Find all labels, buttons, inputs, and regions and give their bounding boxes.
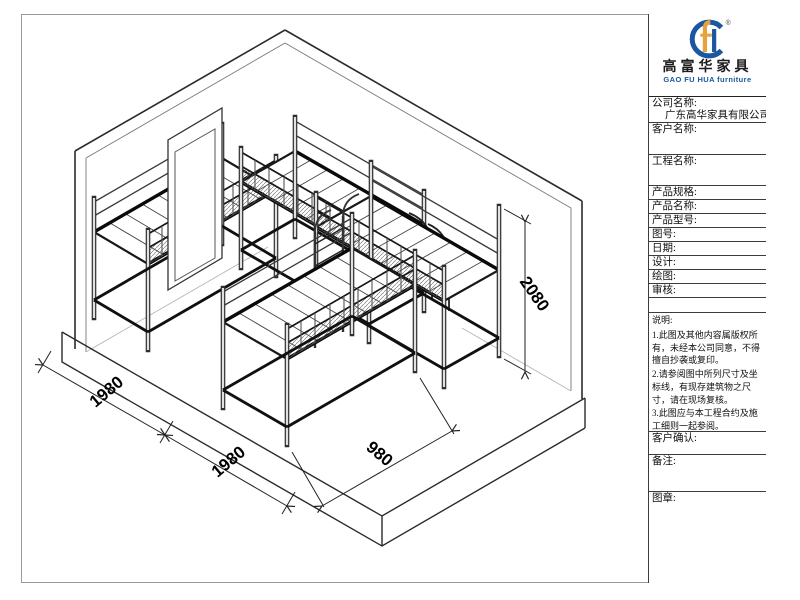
field-label: 图章: (652, 493, 676, 504)
dim-label-height: 2080 (516, 273, 553, 315)
room-floor-slab (62, 332, 585, 546)
brand-name-en: GAO FU HUA furniture (663, 76, 751, 85)
extension-lines-bays (38, 351, 295, 514)
svg-text:®: ® (725, 19, 730, 27)
field-label: 客户名称: (652, 124, 697, 135)
spacer-row (649, 298, 766, 313)
dim-label-depth: 980 (363, 437, 397, 470)
logo-box: ® 高富华家具 GAO FU HUA furniture (649, 14, 766, 97)
field-label: 公司名称: (652, 98, 697, 109)
field-review: 审核: (649, 284, 766, 298)
field-remark: 备注: (649, 455, 766, 492)
field-product-name: 产品名称: (649, 200, 766, 214)
field-label: 产品名称: (652, 201, 697, 212)
field-design: 设计: (649, 256, 766, 270)
field-label: 客户确认: (652, 433, 697, 444)
dim-label-bay2: 1980 (208, 442, 249, 481)
field-date: 日期: (649, 242, 766, 256)
note-line: 3.此图应与本工程合约及施工细则一起参阅。 (652, 407, 763, 432)
notes-label: 说明: (652, 314, 763, 327)
field-label: 绘图: (652, 271, 676, 282)
field-spec: 产品规格: (649, 186, 766, 200)
field-model: 产品型号: (649, 214, 766, 228)
field-value: 广东高华家具有限公司 (652, 110, 763, 122)
title-block: ® 高富华家具 GAO FU HUA furniture 公司名称: 广东高华家… (648, 14, 766, 583)
field-customer-confirm: 客户确认: (649, 432, 766, 455)
field-draft: 绘图: (649, 270, 766, 284)
dim-label-bay1: 1980 (86, 372, 127, 411)
field-label: 图号: (652, 229, 676, 240)
field-project: 工程名称: (649, 155, 766, 186)
field-label: 产品型号: (652, 215, 697, 226)
field-stamp: 图章: (649, 492, 766, 583)
field-drawing-no: 图号: (649, 228, 766, 242)
note-line: 1.此图及其他内容属版权所有，未经本公司同意，不得擅自抄袭或复印。 (652, 329, 763, 367)
field-company: 公司名称: 广东高华家具有限公司 (649, 97, 766, 123)
brand-name-cn: 高富华家具 (663, 60, 753, 76)
gfh-logo-icon: ® (685, 16, 731, 62)
notes-block: 说明: 1.此图及其他内容属版权所有，未经本公司同意，不得擅自抄袭或复印。 2.… (649, 313, 766, 432)
field-label: 产品规格: (652, 187, 697, 198)
field-label: 设计: (652, 257, 676, 268)
field-customer: 客户名称: (649, 123, 766, 155)
field-label: 备注: (652, 456, 676, 467)
field-label: 审核: (652, 285, 676, 296)
drawing-sheet: 1980 1980 980 2080 ® 高富华家具 GAO FU HUA fu… (0, 0, 800, 600)
dim-line-depth (322, 431, 452, 506)
head-panel-frame (168, 108, 222, 290)
field-label: 工程名称: (652, 156, 697, 167)
field-label: 日期: (652, 243, 676, 254)
note-line: 2.请参阅图中所列尺寸及坐标线，有现存建筑物之尺寸，请在现场复核。 (652, 368, 763, 406)
